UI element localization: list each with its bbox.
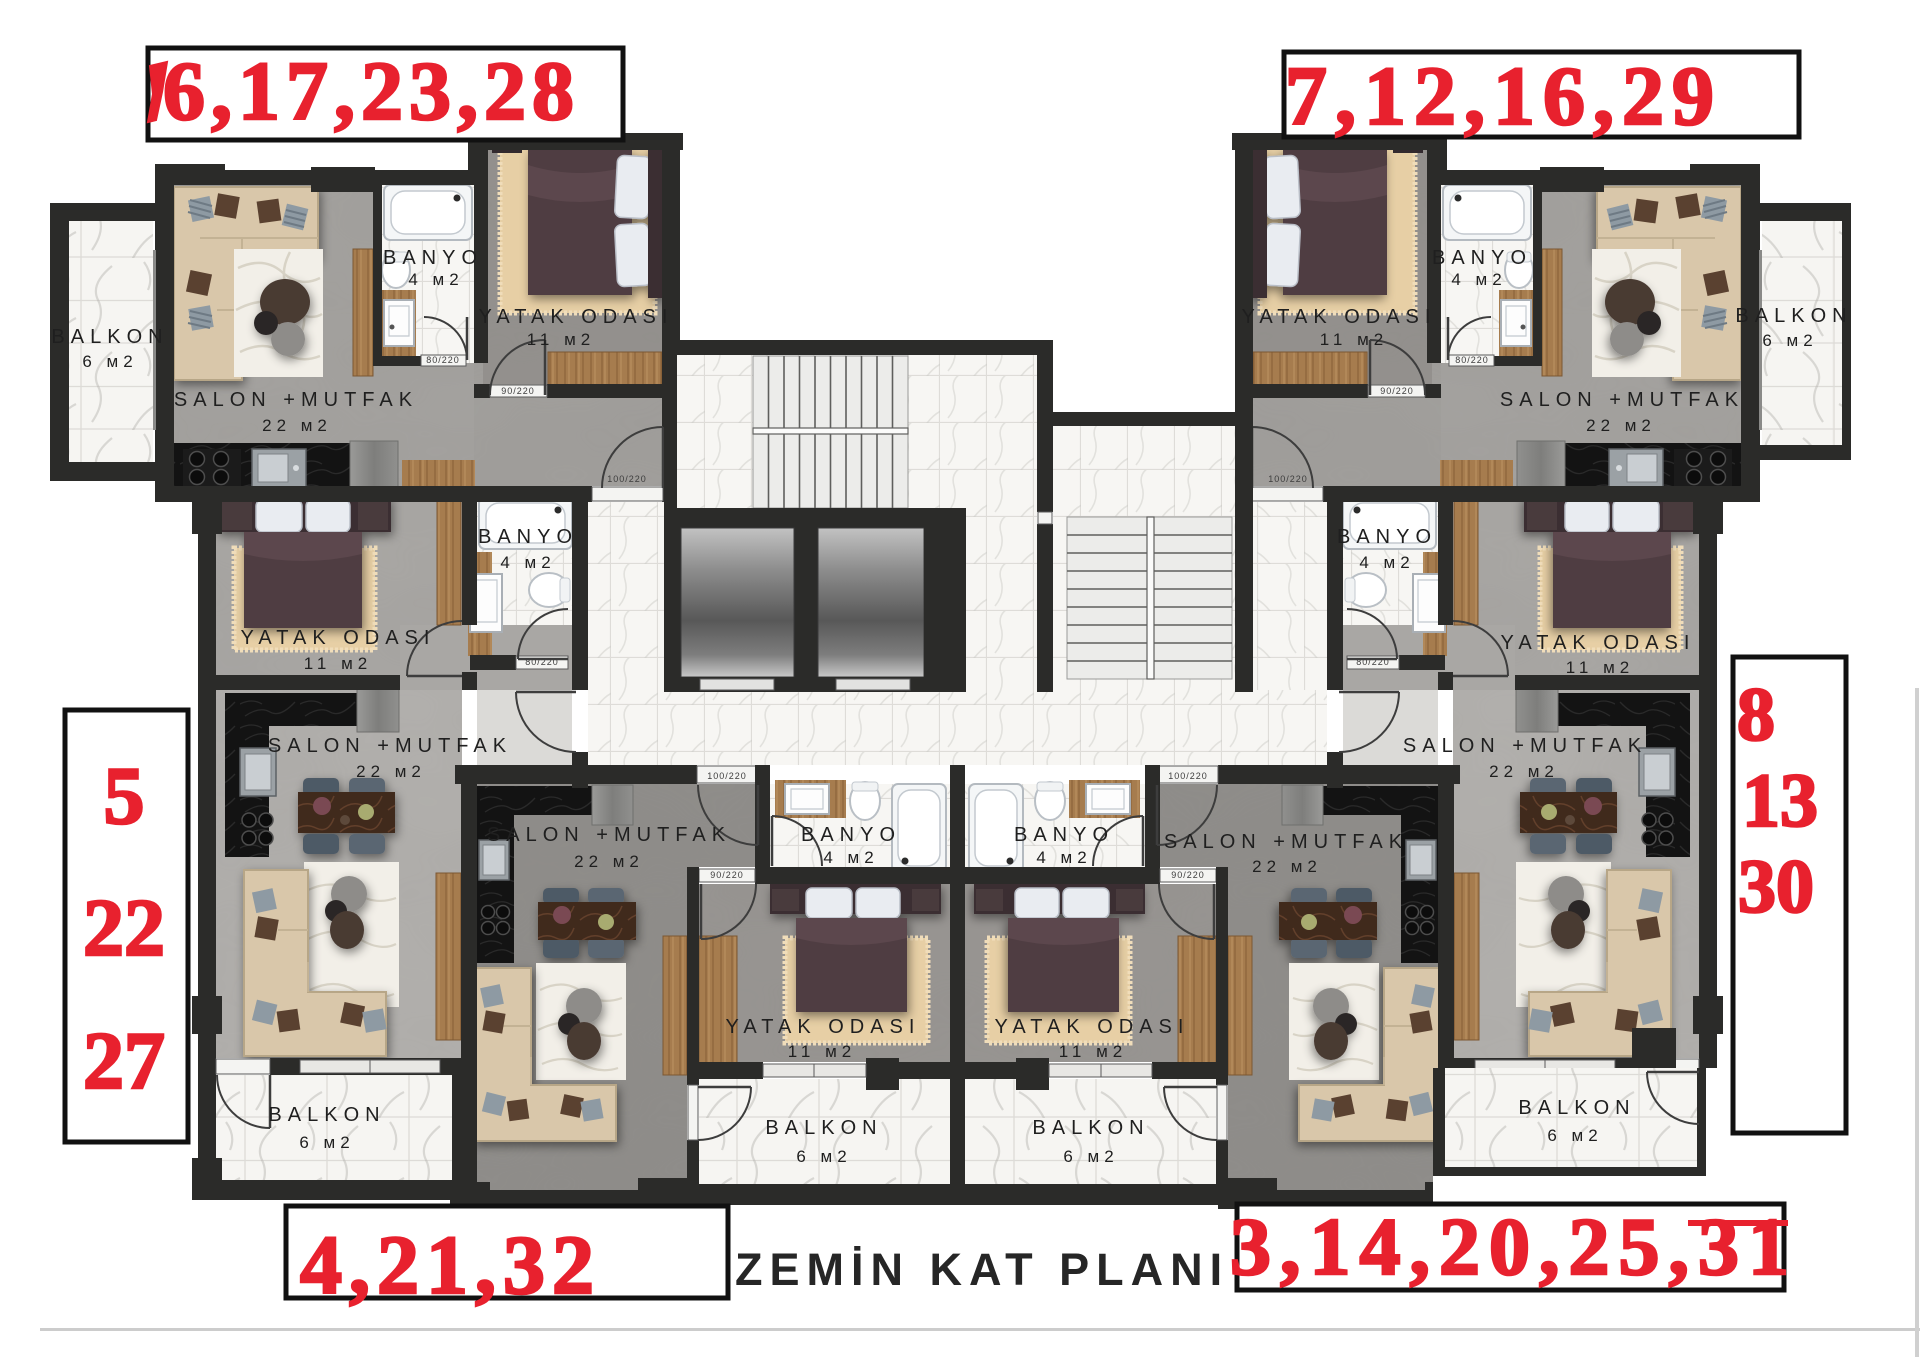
svg-text:80/220: 80/220 — [426, 355, 460, 365]
svg-text:SALON +MUTFAK: SALON +MUTFAK — [1164, 831, 1408, 853]
svg-text:11 м2: 11 м2 — [788, 1042, 857, 1061]
svg-text:BANYO: BANYO — [478, 526, 578, 548]
svg-text:22 м2: 22 м2 — [574, 852, 644, 871]
svg-text:6 м2: 6 м2 — [82, 352, 137, 371]
svg-text:100/220: 100/220 — [1268, 474, 1308, 484]
svg-text:3,14,20,25,31: 3,14,20,25,31 — [1230, 1201, 1798, 1292]
svg-text:SALON +MUTFAK: SALON +MUTFAK — [1500, 389, 1744, 411]
svg-text:90/220: 90/220 — [710, 870, 744, 880]
svg-text:80/220: 80/220 — [1356, 657, 1390, 667]
svg-text:6 м2: 6 м2 — [1762, 331, 1817, 350]
svg-text:4 м2: 4 м2 — [1036, 848, 1091, 867]
svg-text:4,21,32: 4,21,32 — [300, 1219, 601, 1312]
svg-text:4 м2: 4 м2 — [408, 270, 463, 289]
svg-text:22: 22 — [83, 882, 165, 973]
svg-text:22 м2: 22 м2 — [1489, 762, 1559, 781]
svg-text:6 м2: 6 м2 — [796, 1147, 851, 1166]
svg-text:100/220: 100/220 — [707, 771, 747, 781]
svg-text:30: 30 — [1738, 845, 1814, 929]
svg-text:YATAK ODASI: YATAK ODASI — [1501, 632, 1696, 654]
svg-text:22 м2: 22 м2 — [262, 416, 332, 435]
svg-text:11 м2: 11 м2 — [304, 654, 373, 673]
svg-text:80/220: 80/220 — [1455, 355, 1489, 365]
svg-text:YATAK ODASI: YATAK ODASI — [995, 1016, 1190, 1038]
svg-text:11 м2: 11 м2 — [1059, 1042, 1128, 1061]
svg-text:BALKON: BALKON — [1518, 1097, 1635, 1119]
svg-text:YATAK ODASI: YATAK ODASI — [1242, 306, 1437, 328]
svg-text:BANYO: BANYO — [1432, 247, 1532, 269]
svg-text:4 м2: 4 м2 — [1451, 270, 1506, 289]
svg-text:100/220: 100/220 — [607, 474, 647, 484]
svg-text:SALON +MUTFAK: SALON +MUTFAK — [1403, 735, 1647, 757]
svg-text:4 м2: 4 м2 — [500, 553, 555, 572]
svg-text:SALON +MUTFAK: SALON +MUTFAK — [174, 389, 418, 411]
svg-text:11 м2: 11 м2 — [1320, 330, 1389, 349]
svg-text:SALON +MUTFAK: SALON +MUTFAK — [487, 824, 731, 846]
svg-text:6 м2: 6 м2 — [1063, 1147, 1118, 1166]
svg-text:BANYO: BANYO — [383, 247, 483, 269]
svg-text:BANYO: BANYO — [1014, 824, 1114, 846]
svg-text:4 м2: 4 м2 — [823, 848, 878, 867]
svg-text:6 м2: 6 м2 — [1547, 1126, 1602, 1145]
svg-text:BANYO: BANYO — [1337, 526, 1437, 548]
svg-text:27: 27 — [83, 1015, 165, 1106]
svg-text:6,17,23,28: 6,17,23,28 — [163, 45, 580, 138]
svg-text:YATAK ODASI: YATAK ODASI — [479, 306, 674, 328]
svg-text:BALKON: BALKON — [1735, 305, 1852, 327]
svg-text:11 м2: 11 м2 — [527, 330, 596, 349]
svg-text:5: 5 — [104, 750, 145, 841]
svg-text:80/220: 80/220 — [525, 657, 559, 667]
svg-text:BALKON: BALKON — [765, 1117, 882, 1139]
svg-text:11 м2: 11 м2 — [1566, 658, 1635, 677]
svg-text:BALKON: BALKON — [1032, 1117, 1149, 1139]
svg-text:7,12,16,29: 7,12,16,29 — [1285, 50, 1722, 143]
svg-text:22 м2: 22 м2 — [1252, 857, 1322, 876]
svg-text:22 м2: 22 м2 — [356, 762, 426, 781]
svg-text:100/220: 100/220 — [1168, 771, 1208, 781]
svg-text:90/220: 90/220 — [1380, 386, 1414, 396]
svg-text:90/220: 90/220 — [501, 386, 535, 396]
svg-text:SALON +MUTFAK: SALON +MUTFAK — [268, 735, 512, 757]
svg-text:6 м2: 6 м2 — [299, 1133, 354, 1152]
svg-text:13: 13 — [1742, 759, 1818, 843]
svg-text:8: 8 — [1737, 673, 1775, 757]
svg-text:YATAK ODASI: YATAK ODASI — [241, 627, 436, 649]
svg-text:22 м2: 22 м2 — [1586, 416, 1656, 435]
svg-text:BANYO: BANYO — [801, 824, 901, 846]
svg-text:4 м2: 4 м2 — [1359, 553, 1414, 572]
svg-text:BALKON: BALKON — [51, 326, 168, 348]
svg-text:ZEMİN KAT PLANI: ZEMİN KAT PLANI — [735, 1244, 1229, 1295]
svg-text:90/220: 90/220 — [1171, 870, 1205, 880]
svg-text:BALKON: BALKON — [268, 1104, 385, 1126]
svg-text:YATAK ODASI: YATAK ODASI — [726, 1016, 921, 1038]
